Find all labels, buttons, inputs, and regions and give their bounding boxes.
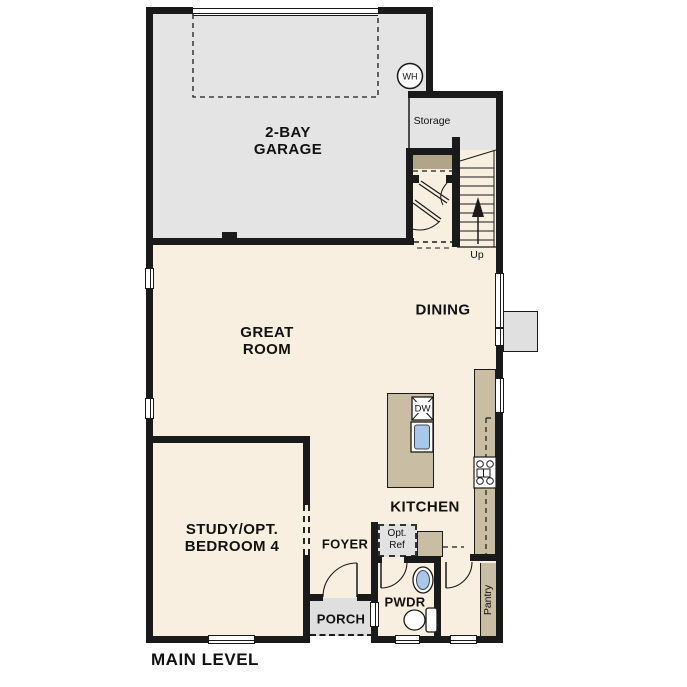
garage-label: 2-BAY GARAGE	[254, 124, 322, 158]
study-label: STUDY/OPT. BEDROOM 4	[185, 521, 279, 555]
powder-label: PWDR	[385, 595, 426, 610]
wall	[496, 413, 503, 643]
window	[208, 635, 255, 644]
storage-label: Storage	[414, 115, 451, 127]
stairs-up-label: Up	[470, 249, 483, 261]
wall	[496, 91, 503, 275]
foyer-label: FOYER	[322, 537, 368, 552]
wall	[146, 7, 193, 14]
wall	[371, 556, 382, 563]
great-room-label-line1: GREAT	[240, 324, 293, 341]
window	[145, 398, 154, 419]
wall	[146, 7, 153, 643]
exterior-bump	[503, 311, 538, 352]
window	[145, 268, 154, 289]
garage-label-line1: 2-BAY	[265, 124, 311, 141]
wall	[303, 555, 310, 643]
wall	[470, 554, 503, 561]
garage-door	[193, 8, 378, 16]
study-label-line2: BEDROOM 4	[185, 538, 279, 555]
wall	[146, 238, 414, 245]
dining-label: DINING	[416, 302, 471, 319]
wall	[426, 7, 433, 98]
wall	[378, 7, 433, 14]
window	[395, 635, 420, 644]
garage-label-line2: GARAGE	[254, 141, 322, 158]
kitchen-island	[387, 393, 434, 488]
window	[495, 378, 504, 413]
opt-ref-line2: Ref	[389, 540, 405, 551]
closet-shelf	[413, 155, 453, 169]
porch-label: PORCH	[317, 612, 365, 627]
wall	[434, 556, 441, 643]
cased-opening	[303, 505, 310, 555]
wall	[303, 436, 310, 505]
kitchen-label: KITCHEN	[390, 499, 459, 516]
wall	[357, 594, 373, 601]
ref-counter	[417, 531, 443, 557]
wall	[452, 137, 460, 247]
great-room-label: GREAT ROOM	[240, 324, 293, 358]
wall-post	[222, 232, 237, 239]
wall	[310, 594, 323, 601]
window	[370, 602, 379, 627]
wall	[406, 148, 413, 245]
great-room-label-line2: ROOM	[243, 341, 291, 358]
kitchen-counter	[474, 369, 496, 556]
wall	[496, 345, 503, 378]
wall	[408, 91, 503, 98]
wall	[146, 436, 310, 443]
window	[495, 273, 504, 328]
plan-title: MAIN LEVEL	[151, 650, 259, 670]
opt-ref-label: Opt. Ref	[388, 528, 407, 552]
study-label-line1: STUDY/OPT.	[186, 521, 278, 538]
wall	[373, 636, 503, 643]
opt-ref-line1: Opt.	[388, 528, 407, 539]
window	[450, 635, 477, 644]
window	[495, 328, 504, 346]
floor-plan: WH DW	[0, 0, 687, 687]
pantry-label: Pantry	[482, 585, 494, 615]
